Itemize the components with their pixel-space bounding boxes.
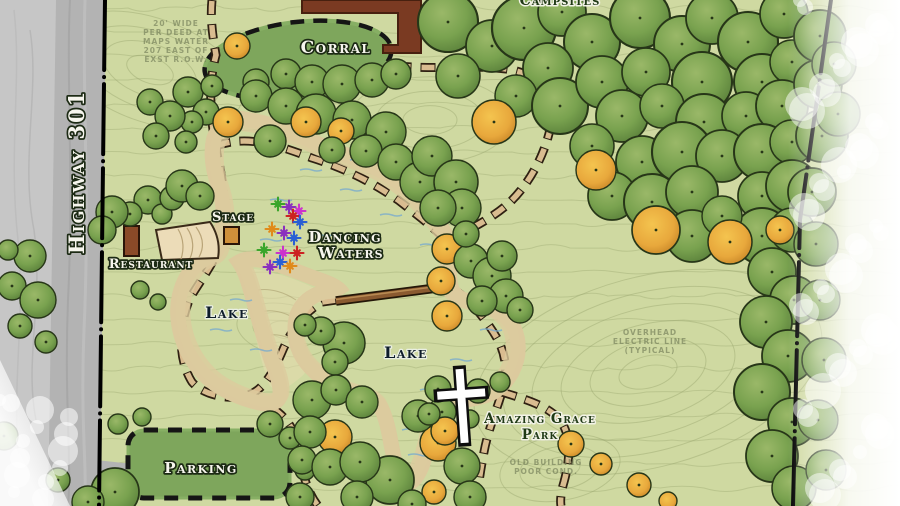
electric-note-line: ELECTRIC LINE: [613, 337, 687, 346]
label-corral: Corral: [301, 38, 372, 58]
tree-fall-canopy: [659, 492, 677, 506]
label-amazing-grace-park: Park: [522, 427, 559, 443]
label-parking: Parking: [164, 459, 238, 477]
park-master-plan-map: Highway 301 Corral Stage Restaurant Danc…: [0, 0, 900, 506]
deed-note-line: 207 EAST OF: [144, 46, 209, 55]
electric-note-line: OVERHEAD: [623, 328, 677, 337]
tree-canopy: [286, 483, 314, 506]
label-highway-301: Highway 301: [64, 90, 89, 254]
tree-canopy: [454, 481, 486, 506]
map-canvas: Highway 301 Corral Stage Restaurant Danc…: [0, 0, 900, 506]
electric-note-line: (TYPICAL): [625, 346, 676, 355]
label-stage: Stage: [212, 210, 254, 225]
tree-canopy: [131, 281, 149, 299]
tree-canopy: [341, 481, 373, 506]
restaurant-building: [124, 226, 139, 256]
stage-platform: [224, 227, 239, 244]
old-building-note-line: POOR COND.: [514, 467, 578, 476]
amphitheater-seating: [156, 222, 219, 260]
deed-note-line: PER DEED AT: [143, 28, 209, 37]
label-cutoff-top: Campsites: [520, 0, 601, 9]
deed-note-line: EXST R.O.W.: [144, 55, 207, 64]
deed-note-line: MAPS WATER: [143, 37, 209, 46]
old-building-note-line: OLD BUILDING: [510, 458, 583, 467]
label-dancing-waters-2: Waters: [317, 244, 384, 262]
tree-canopy: [0, 240, 18, 260]
tree-canopy: [108, 414, 128, 434]
label-amazing-grace: Amazing Grace: [483, 411, 596, 427]
tree-canopy: [490, 372, 510, 392]
label-lake-west: Lake: [205, 303, 249, 322]
label-lake-south: Lake: [384, 343, 428, 362]
deed-note-line: 20' WIDE: [153, 19, 199, 28]
label-restaurant: Restaurant: [109, 257, 194, 272]
tree-canopy: [133, 408, 151, 426]
tree-canopy: [150, 294, 166, 310]
